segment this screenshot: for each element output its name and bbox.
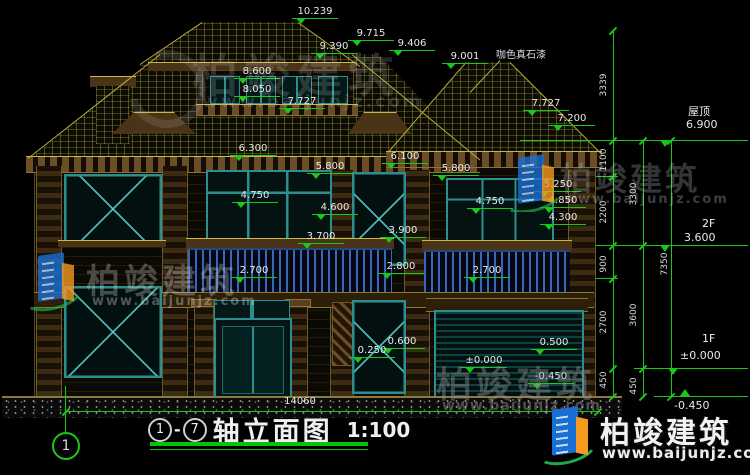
level-label: 6.100 — [382, 151, 428, 164]
level-label: 0.500 — [531, 337, 577, 350]
dimension-tick — [609, 27, 617, 35]
level-label: 0.250 — [349, 345, 395, 358]
watermark-logo-icon — [502, 154, 556, 208]
dimension-tick — [667, 393, 675, 401]
level-label: 4.600 — [312, 202, 358, 215]
chain-dimension-label: 2700 — [599, 302, 611, 342]
title-dash: - — [174, 420, 181, 439]
dimension-tick — [639, 242, 647, 250]
watermark-mid-left: 柏竣建筑 www.baijunjz.com — [22, 252, 282, 314]
level-label: 4.750 — [232, 190, 278, 203]
watermark-url: www.baijunjz.com — [602, 444, 750, 462]
chain-dimension-label: 3600 — [629, 295, 641, 335]
title-scale: 1:100 — [347, 418, 411, 442]
watermark-logo-icon — [22, 252, 80, 310]
cad-canvas: 屋顶 6.900 2F 3.600 1F ±0.000 -0.450 14060… — [0, 0, 750, 475]
logo-building-orange — [576, 417, 588, 456]
level-label: 5.800 — [307, 161, 353, 174]
level-label: 3.700 — [298, 231, 344, 244]
level-label: 2.700 — [464, 265, 510, 278]
level-label: 4.300 — [540, 212, 586, 225]
logo-building-blue — [38, 252, 64, 302]
dimension-tick — [62, 408, 70, 416]
watermark-url: www.baijunjz.com — [92, 294, 257, 309]
level-label: 3.900 — [380, 225, 426, 238]
dimension-tick — [609, 137, 617, 145]
chain-dimension-label: 7350 — [660, 244, 672, 284]
logo-building-blue — [552, 406, 578, 456]
logo-building-orange — [542, 165, 554, 204]
title-underline-thick — [150, 442, 368, 446]
level-label: 5.800 — [433, 163, 479, 176]
logo-building-blue — [518, 154, 544, 204]
level-label: 10.239 — [292, 6, 338, 19]
dimension-tick — [667, 137, 675, 145]
chain-dimension-label: 3339 — [599, 65, 611, 105]
level-label: 6.300 — [230, 143, 276, 156]
dimension-tick — [639, 137, 647, 145]
watermark-url: www.baijunjz.com — [202, 92, 424, 112]
watermark-url: www.baijunjz.com — [564, 192, 729, 207]
title-underline-thin — [150, 449, 368, 450]
level-label: 7.200 — [549, 113, 595, 126]
watermark-mid-right: 柏竣建筑 www.baijunjz.com — [502, 150, 750, 212]
logo-building-orange — [62, 263, 74, 302]
watermark-top: 柏竣建筑 www.baijunjz.com — [128, 42, 548, 122]
title-axis-end-bubble: 7 — [183, 418, 207, 442]
level-label: 2.800 — [378, 261, 424, 274]
watermark-bottom-right: 柏竣建筑 www.baijunjz.com — [536, 404, 750, 474]
title-axis-start-bubble: 1 — [148, 418, 172, 442]
watermark-logo-icon — [536, 406, 598, 466]
